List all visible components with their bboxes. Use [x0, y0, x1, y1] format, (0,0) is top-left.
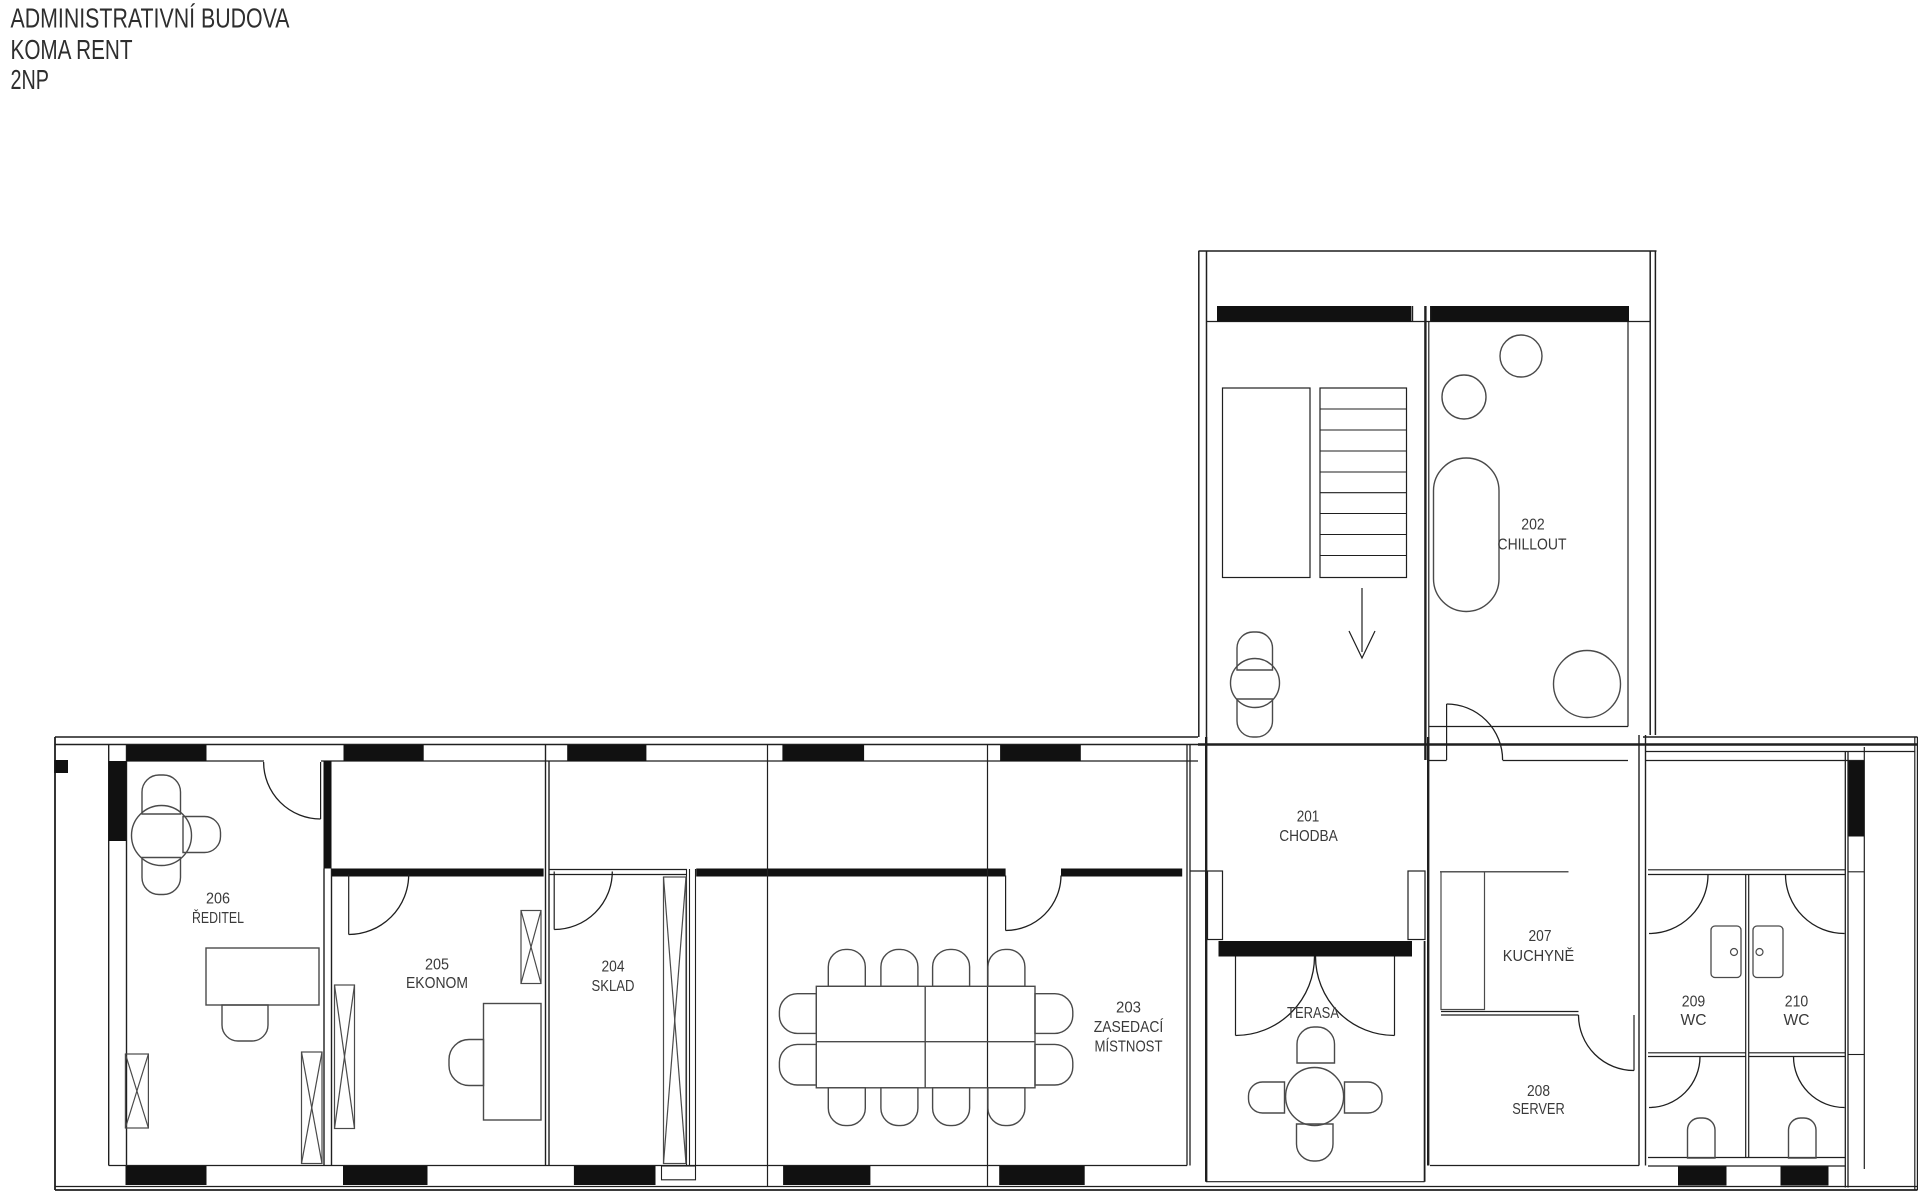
svg-text:201: 201	[1297, 809, 1320, 826]
svg-text:209: 209	[1682, 994, 1706, 1011]
svg-text:MÍSTNOST: MÍSTNOST	[1095, 1037, 1163, 1056]
svg-text:SERVER: SERVER	[1512, 1101, 1565, 1118]
svg-text:SKLAD: SKLAD	[592, 978, 635, 995]
svg-text:206: 206	[206, 891, 230, 908]
svg-text:KOMA RENT: KOMA RENT	[11, 34, 133, 65]
svg-text:KUCHYNĚ: KUCHYNĚ	[1503, 946, 1575, 965]
svg-text:205: 205	[425, 957, 449, 974]
svg-text:ADMINISTRATIVNÍ BUDOVA: ADMINISTRATIVNÍ BUDOVA	[11, 3, 291, 34]
svg-text:202: 202	[1521, 517, 1545, 534]
svg-text:WC: WC	[1784, 1012, 1810, 1029]
svg-text:207: 207	[1529, 928, 1552, 945]
svg-text:210: 210	[1785, 994, 1809, 1011]
svg-text:2NP: 2NP	[11, 64, 50, 95]
svg-text:EKONOM: EKONOM	[406, 975, 468, 992]
svg-text:WC: WC	[1681, 1012, 1707, 1029]
svg-text:CHILLOUT: CHILLOUT	[1498, 537, 1567, 554]
svg-text:204: 204	[602, 959, 625, 976]
svg-text:208: 208	[1527, 1083, 1550, 1100]
svg-text:ZASEDACÍ: ZASEDACÍ	[1094, 1017, 1164, 1036]
svg-text:TERASA: TERASA	[1287, 1005, 1339, 1022]
svg-text:ŘEDITEL: ŘEDITEL	[192, 908, 244, 927]
svg-text:CHODBA: CHODBA	[1279, 828, 1338, 845]
svg-text:203: 203	[1116, 1000, 1141, 1017]
